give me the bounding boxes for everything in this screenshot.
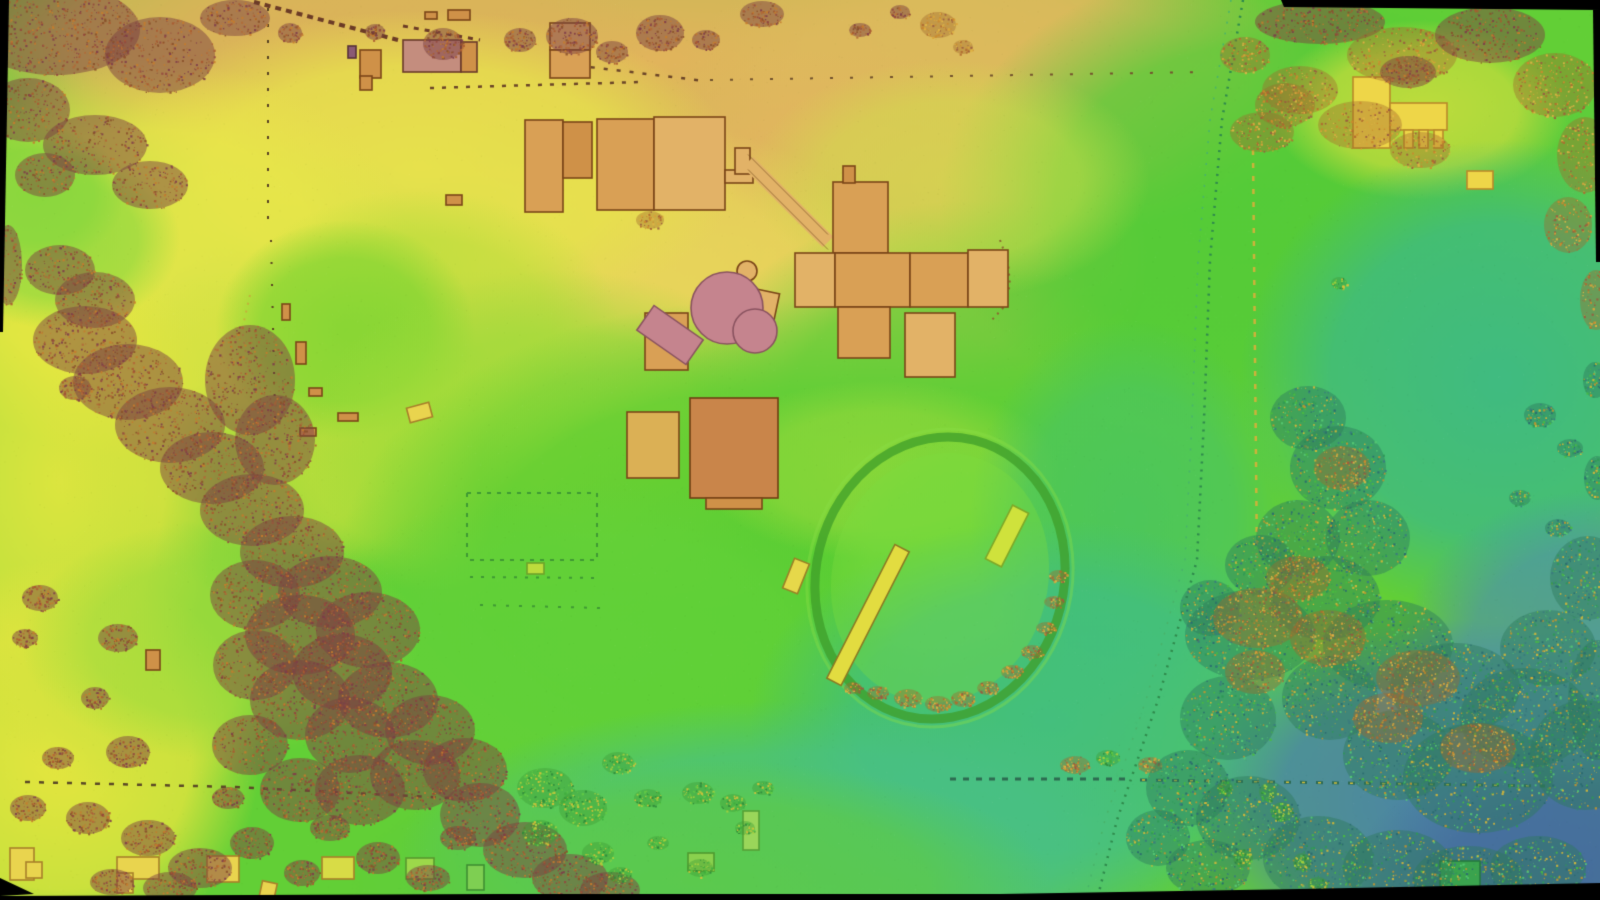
elevation-map-canvas[interactable] <box>0 0 1600 900</box>
lidar-elevation-map-viewport <box>0 0 1600 900</box>
